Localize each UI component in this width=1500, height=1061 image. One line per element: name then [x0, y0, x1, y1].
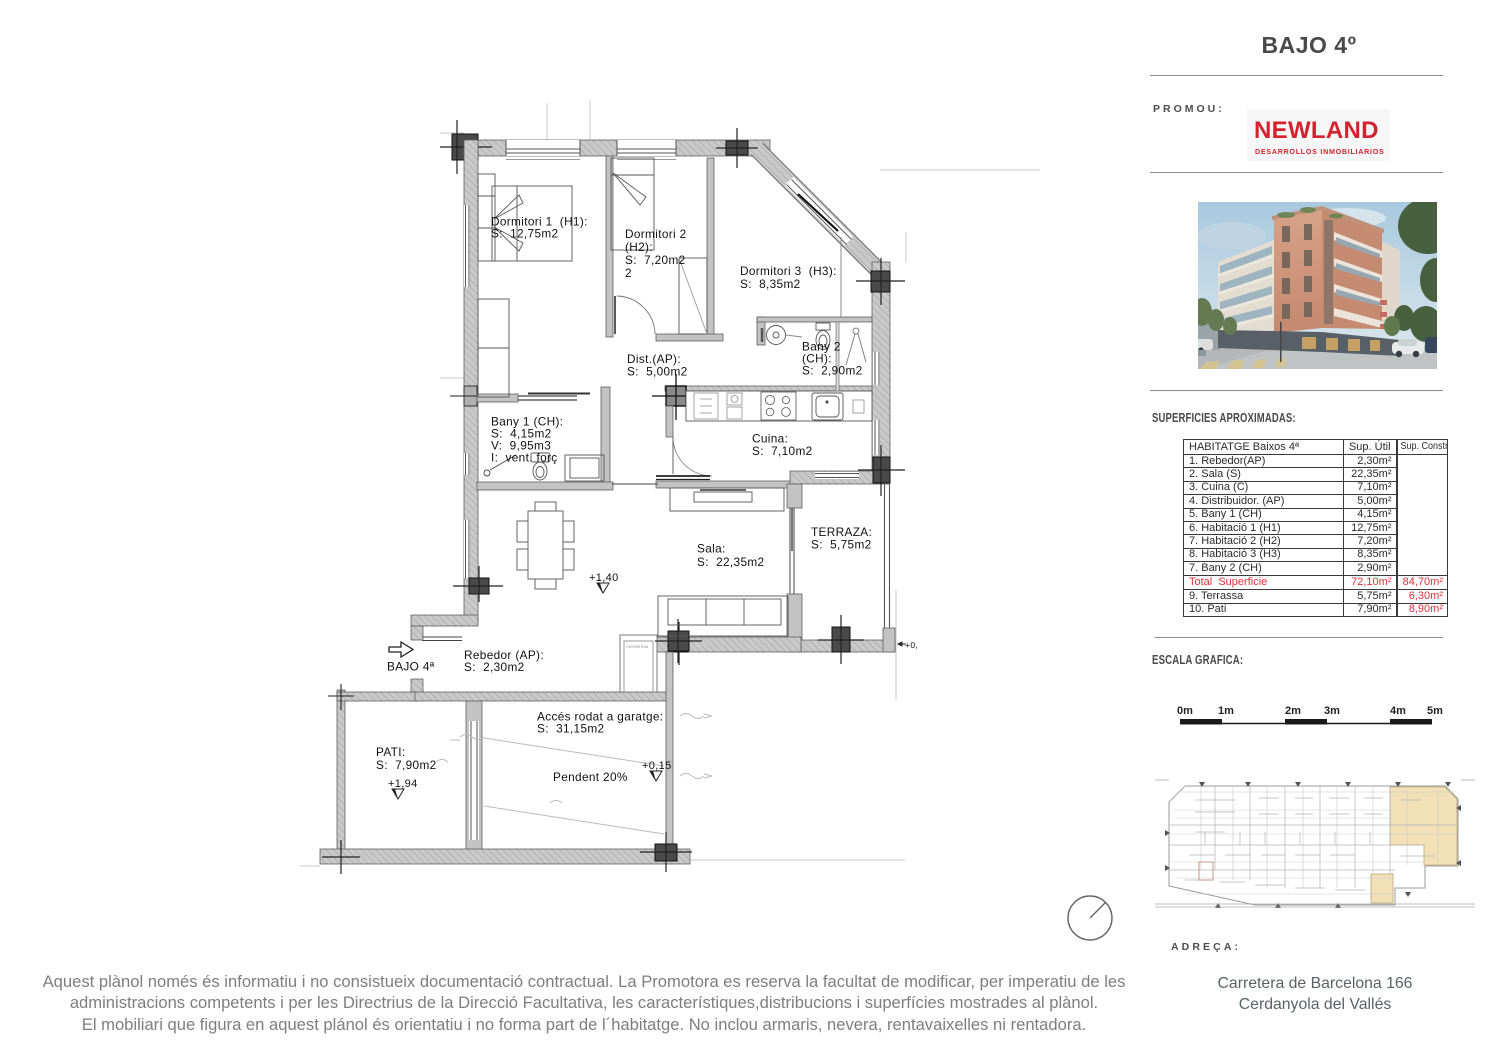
- svg-text:Dormitori 2: Dormitori 2: [625, 227, 687, 241]
- svg-text:S: 5,00m2: S: 5,00m2: [627, 365, 688, 379]
- svg-text:S: 12,75m2: S: 12,75m2: [491, 227, 558, 241]
- svg-text:4m: 4m: [1390, 705, 1406, 717]
- svg-text:Pendent 20%: Pendent 20%: [553, 770, 628, 784]
- svg-text:S: 8,35m2: S: 8,35m2: [740, 277, 801, 291]
- svg-text:BAJO 4ª: BAJO 4ª: [387, 660, 435, 674]
- svg-text:S: 5,75m2: S: 5,75m2: [811, 538, 872, 552]
- svg-text:S: 7,20m2: S: 7,20m2: [625, 253, 686, 267]
- svg-text:+0,15: +0,15: [642, 760, 672, 772]
- svg-text:S: 22,35m2: S: 22,35m2: [697, 555, 764, 569]
- svg-text:S: 2,90m2: S: 2,90m2: [802, 364, 863, 378]
- svg-text:S: 2,30m2: S: 2,30m2: [464, 660, 525, 674]
- svg-text:S: 7,90m2: S: 7,90m2: [376, 758, 437, 772]
- svg-text:Aerotermia: Aerotermia: [626, 644, 649, 649]
- svg-text:(H2):: (H2):: [625, 240, 653, 254]
- svg-text:+1,40: +1,40: [589, 572, 619, 584]
- svg-text:S: 31,15m2: S: 31,15m2: [537, 722, 604, 736]
- svg-text:I: vent. forç: I: vent. forç: [491, 451, 558, 465]
- svg-text:2m: 2m: [1285, 705, 1301, 717]
- svg-text:0m: 0m: [1177, 705, 1193, 717]
- svg-text:1m: 1m: [1218, 705, 1234, 717]
- svg-text:S: 7,10m2: S: 7,10m2: [752, 444, 813, 458]
- svg-text:3m: 3m: [1324, 705, 1340, 717]
- svg-text:2: 2: [625, 266, 632, 280]
- svg-text:Sala:: Sala:: [697, 542, 726, 556]
- svg-text:Dormitori 3 (H3):: Dormitori 3 (H3):: [740, 264, 837, 278]
- svg-text:5m: 5m: [1427, 705, 1443, 717]
- svg-text:PATI:: PATI:: [376, 745, 406, 759]
- svg-text:+0,: +0,: [905, 640, 918, 650]
- svg-text:+1,94: +1,94: [388, 778, 418, 790]
